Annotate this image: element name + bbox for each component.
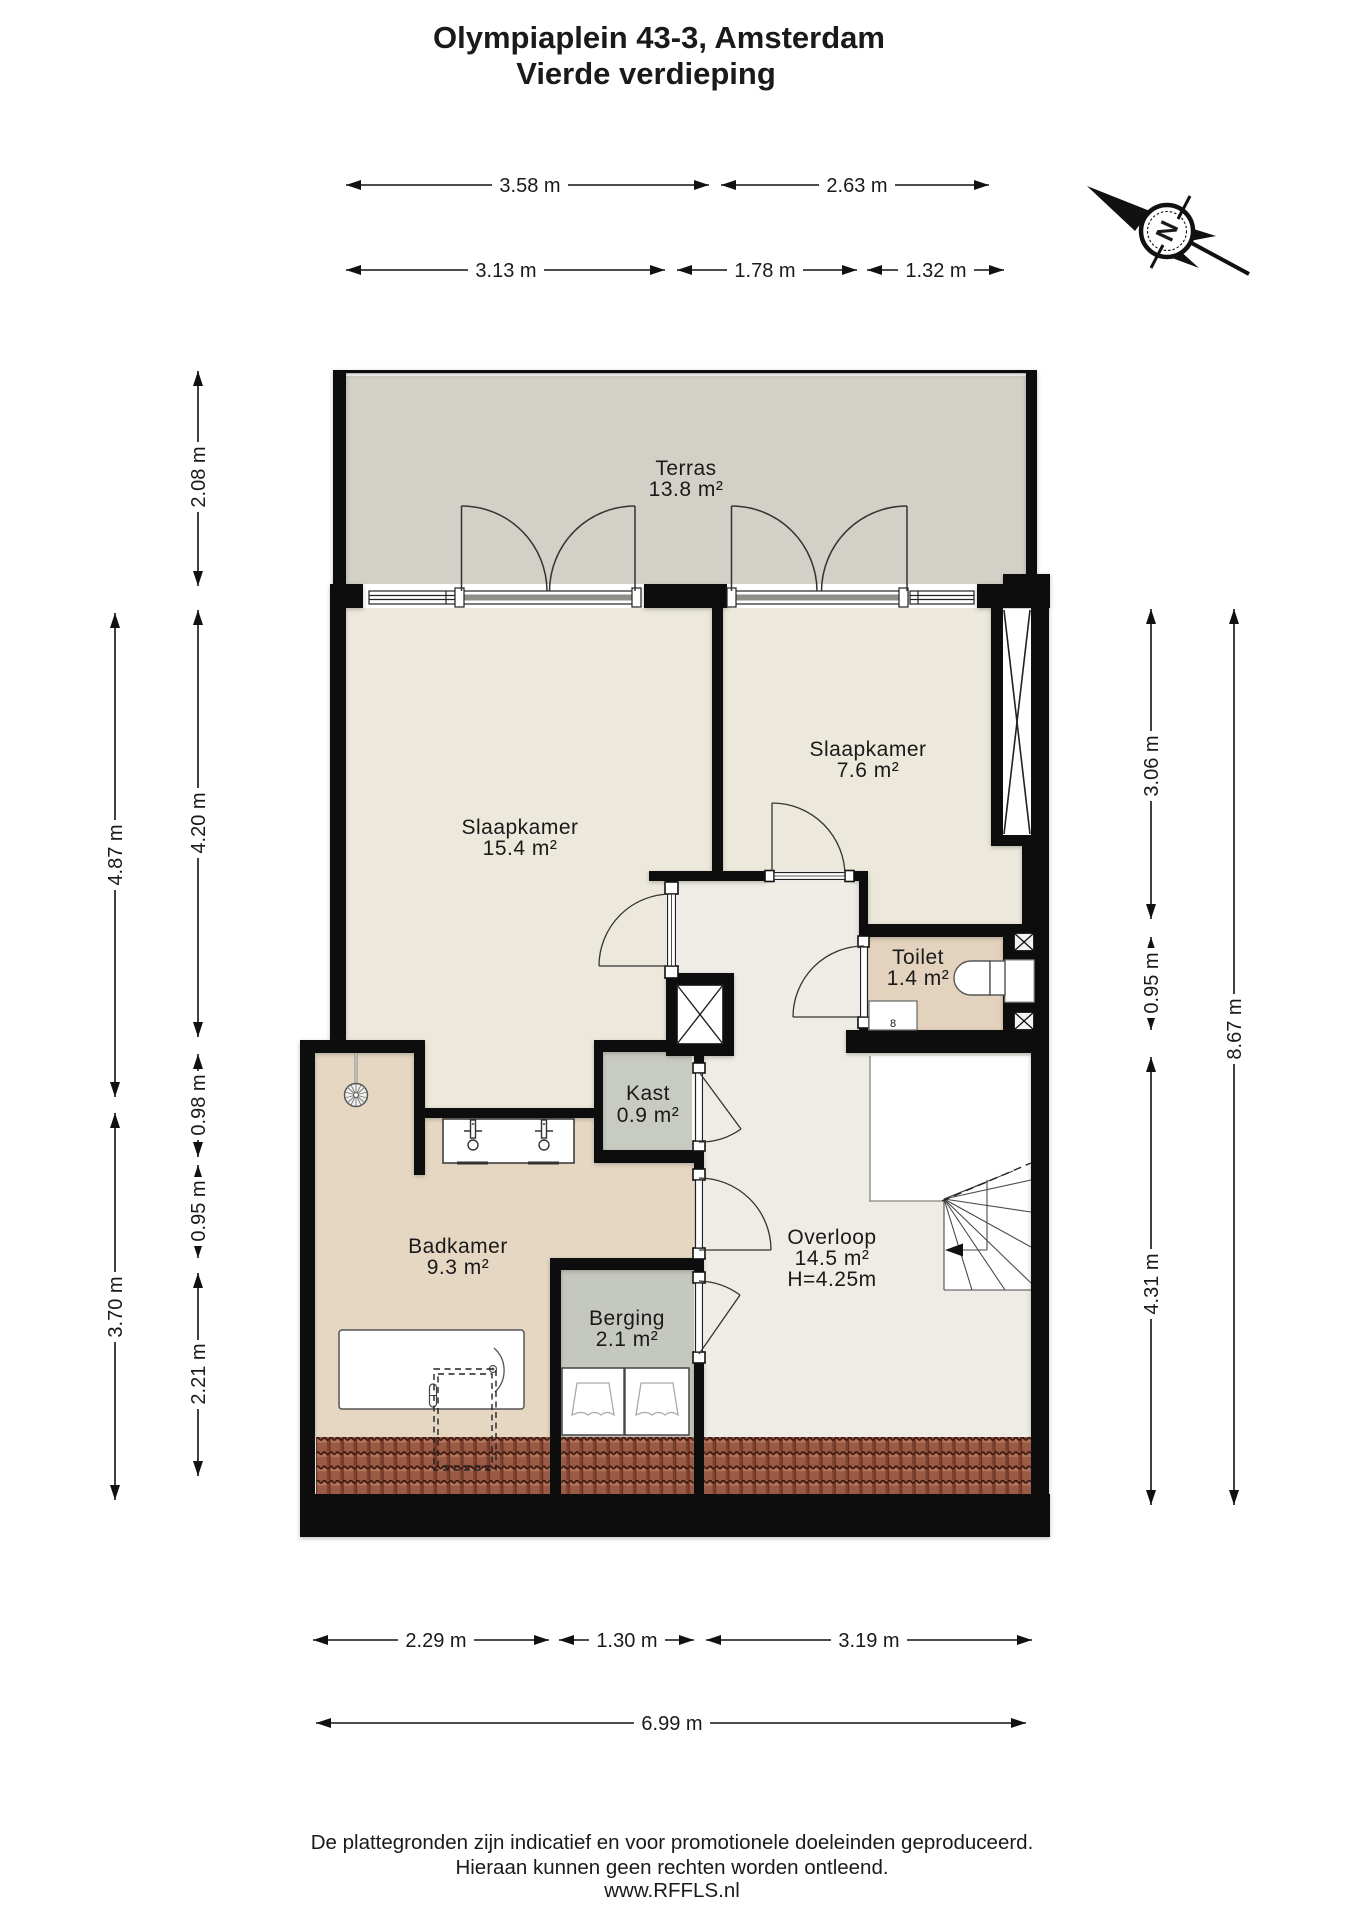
svg-text:Slaapkamer: Slaapkamer — [461, 816, 578, 839]
svg-text:4.31 m: 4.31 m — [1141, 1253, 1163, 1314]
svg-text:0.95 m: 0.95 m — [188, 1180, 210, 1241]
svg-text:Berging: Berging — [589, 1307, 665, 1330]
svg-text:Olympiaplein 43-3, Amsterdam: Olympiaplein 43-3, Amsterdam — [433, 20, 885, 55]
svg-text:9.3 m²: 9.3 m² — [427, 1256, 490, 1279]
svg-text:7.6 m²: 7.6 m² — [837, 759, 900, 782]
svg-text:2.21 m: 2.21 m — [188, 1343, 210, 1404]
svg-text:H=4.25m: H=4.25m — [787, 1268, 876, 1291]
svg-text:Overloop: Overloop — [787, 1226, 876, 1249]
svg-text:8: 8 — [890, 1018, 896, 1030]
svg-text:1.78 m: 1.78 m — [734, 260, 795, 282]
svg-text:3.19 m: 3.19 m — [838, 1630, 899, 1652]
svg-text:3.13 m: 3.13 m — [475, 260, 536, 282]
svg-text:De plattegronden zijn indicati: De plattegronden zijn indicatief en voor… — [311, 1831, 1034, 1854]
svg-text:3.70 m: 3.70 m — [105, 1276, 127, 1337]
svg-text:0.98 m: 0.98 m — [188, 1074, 210, 1135]
svg-text:2.63 m: 2.63 m — [826, 175, 887, 197]
svg-text:2.1 m²: 2.1 m² — [596, 1328, 659, 1351]
svg-text:6.99 m: 6.99 m — [641, 1713, 702, 1735]
svg-text:0.9 m²: 0.9 m² — [617, 1104, 680, 1127]
svg-text:3.58 m: 3.58 m — [499, 175, 560, 197]
svg-text:2.08 m: 2.08 m — [188, 446, 210, 507]
svg-text:13.8 m²: 13.8 m² — [649, 478, 724, 501]
svg-text:1.30 m: 1.30 m — [596, 1630, 657, 1652]
svg-text:Terras: Terras — [655, 457, 716, 480]
svg-text:1.32 m: 1.32 m — [905, 260, 966, 282]
svg-text:15.4 m²: 15.4 m² — [483, 837, 558, 860]
svg-text:1.4 m²: 1.4 m² — [887, 967, 950, 990]
svg-text:2.29 m: 2.29 m — [405, 1630, 466, 1652]
svg-text:Hieraan kunnen geen rechten wo: Hieraan kunnen geen rechten worden ontle… — [455, 1856, 888, 1879]
svg-text:0.95 m: 0.95 m — [1141, 952, 1163, 1013]
svg-text:www.RFFLS.nl: www.RFFLS.nl — [603, 1879, 740, 1902]
svg-text:14.5 m²: 14.5 m² — [795, 1247, 870, 1270]
svg-text:8.67 m: 8.67 m — [1224, 998, 1246, 1059]
svg-text:Toilet: Toilet — [892, 946, 944, 969]
svg-text:3.06 m: 3.06 m — [1141, 735, 1163, 796]
svg-text:Vierde verdieping: Vierde verdieping — [516, 56, 776, 91]
svg-text:4.87 m: 4.87 m — [105, 824, 127, 885]
svg-text:Kast: Kast — [626, 1082, 670, 1105]
svg-text:Slaapkamer: Slaapkamer — [809, 738, 926, 761]
svg-text:4.20 m: 4.20 m — [188, 792, 210, 853]
svg-text:Badkamer: Badkamer — [408, 1235, 508, 1258]
